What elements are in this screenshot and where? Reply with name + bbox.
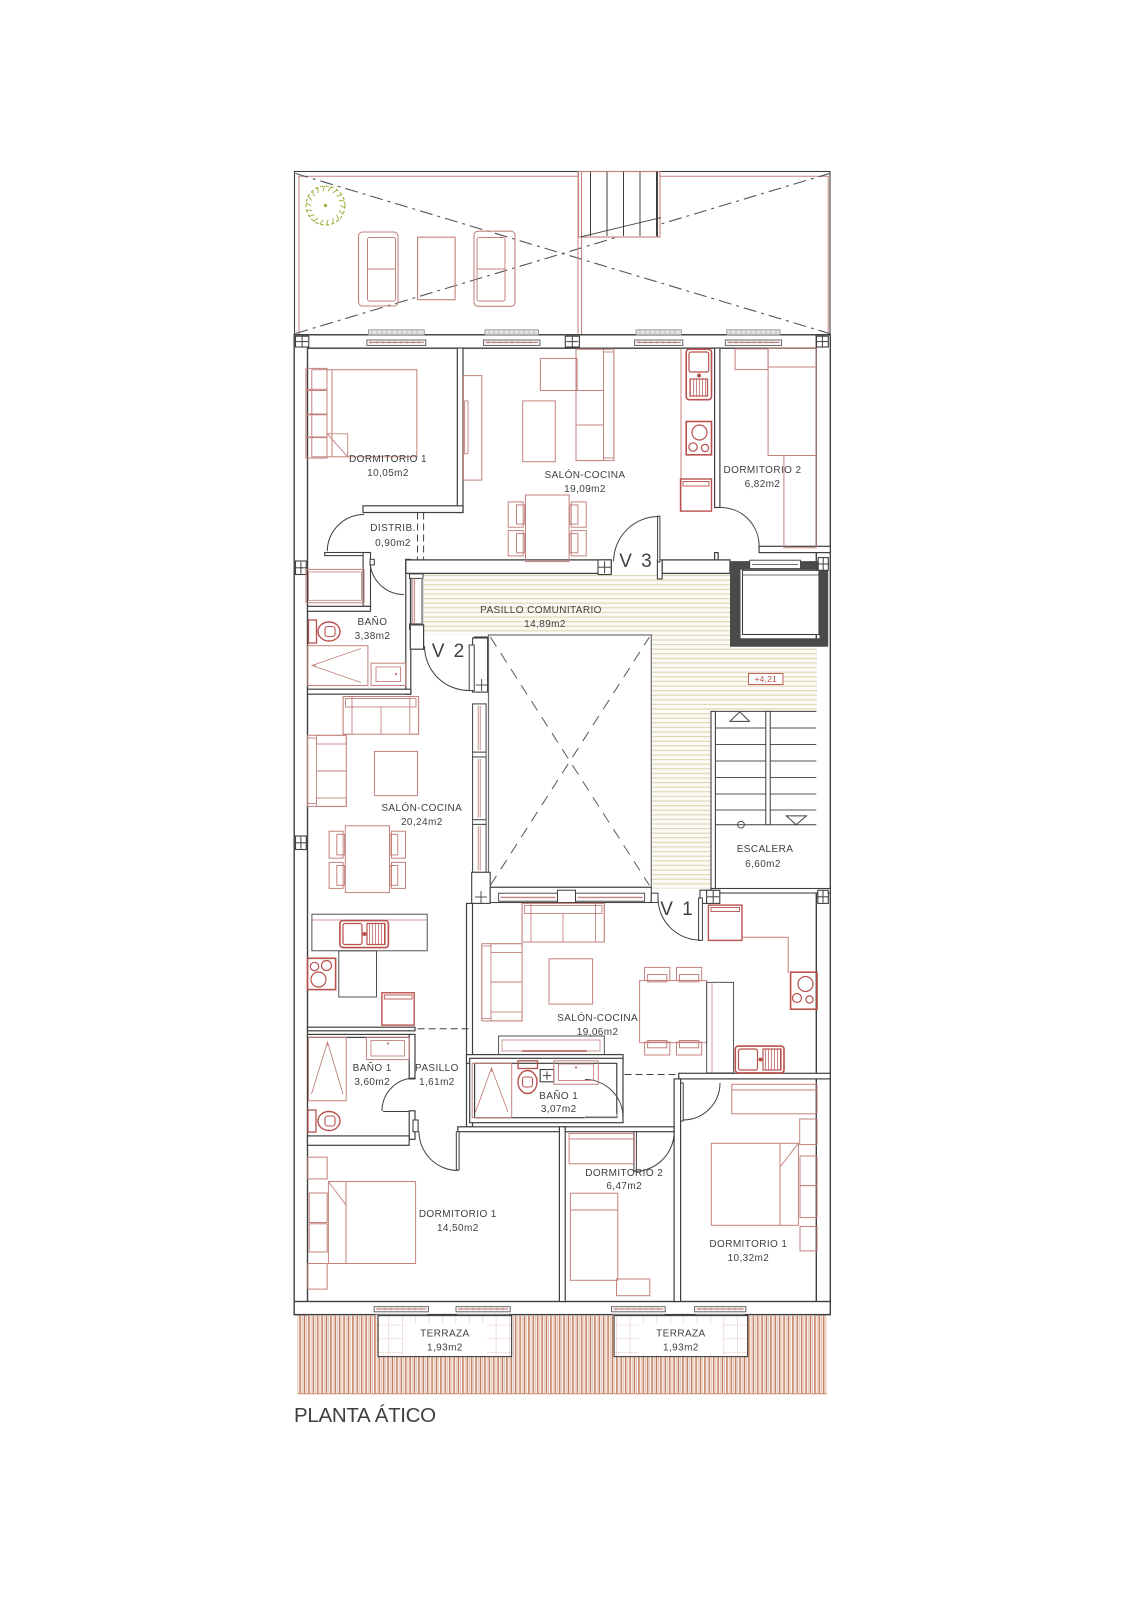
svg-text:1,93m2: 1,93m2 bbox=[663, 1343, 699, 1354]
svg-text:10,05m2: 10,05m2 bbox=[367, 468, 409, 479]
svg-text:PLANTA ÁTICO: PLANTA ÁTICO bbox=[294, 1404, 436, 1427]
svg-text:V 2: V 2 bbox=[432, 641, 467, 662]
svg-text:19,06m2: 19,06m2 bbox=[577, 1027, 619, 1038]
svg-text:0,90m2: 0,90m2 bbox=[375, 538, 411, 549]
svg-text:DORMITORIO 2: DORMITORIO 2 bbox=[585, 1168, 663, 1179]
svg-text:6,82m2: 6,82m2 bbox=[745, 479, 781, 490]
svg-text:PASILLO: PASILLO bbox=[415, 1063, 459, 1074]
svg-text:V 1: V 1 bbox=[660, 899, 695, 920]
svg-text:3,38m2: 3,38m2 bbox=[355, 631, 391, 642]
svg-text:TERRAZA: TERRAZA bbox=[656, 1329, 705, 1340]
svg-text:14,89m2: 14,89m2 bbox=[524, 619, 566, 630]
svg-text:SALÓN-COCINA: SALÓN-COCINA bbox=[381, 801, 462, 814]
svg-text:+4,21: +4,21 bbox=[754, 674, 777, 684]
svg-text:14,50m2: 14,50m2 bbox=[437, 1223, 479, 1234]
svg-text:DORMITORIO 1: DORMITORIO 1 bbox=[709, 1239, 787, 1250]
svg-text:1,93m2: 1,93m2 bbox=[427, 1343, 463, 1354]
svg-text:DISTRIB.: DISTRIB. bbox=[370, 523, 415, 534]
svg-text:SALÓN-COCINA: SALÓN-COCINA bbox=[545, 468, 626, 481]
svg-text:3,60m2: 3,60m2 bbox=[354, 1077, 390, 1088]
svg-text:ESCALERA: ESCALERA bbox=[737, 844, 794, 855]
svg-text:BAÑO: BAÑO bbox=[358, 615, 388, 628]
svg-text:SALÓN-COCINA: SALÓN-COCINA bbox=[557, 1011, 638, 1024]
svg-text:6,60m2: 6,60m2 bbox=[745, 859, 781, 870]
svg-text:BAÑO 1: BAÑO 1 bbox=[353, 1061, 392, 1074]
svg-text:TERRAZA: TERRAZA bbox=[420, 1329, 469, 1340]
svg-text:10,32m2: 10,32m2 bbox=[728, 1253, 770, 1264]
svg-text:V 3: V 3 bbox=[619, 551, 654, 572]
svg-text:19,09m2: 19,09m2 bbox=[564, 484, 606, 495]
svg-text:20,24m2: 20,24m2 bbox=[401, 817, 443, 828]
svg-text:DORMITORIO 1: DORMITORIO 1 bbox=[419, 1209, 497, 1220]
svg-text:6,47m2: 6,47m2 bbox=[606, 1181, 642, 1192]
svg-text:3,07m2: 3,07m2 bbox=[541, 1104, 577, 1115]
svg-text:BAÑO 1: BAÑO 1 bbox=[539, 1089, 578, 1102]
svg-text:DORMITORIO 2: DORMITORIO 2 bbox=[724, 465, 802, 476]
svg-text:1,61m2: 1,61m2 bbox=[419, 1077, 455, 1088]
svg-text:PASILLO COMUNITARIO: PASILLO COMUNITARIO bbox=[480, 605, 602, 616]
svg-text:DORMITORIO 1: DORMITORIO 1 bbox=[349, 454, 427, 465]
